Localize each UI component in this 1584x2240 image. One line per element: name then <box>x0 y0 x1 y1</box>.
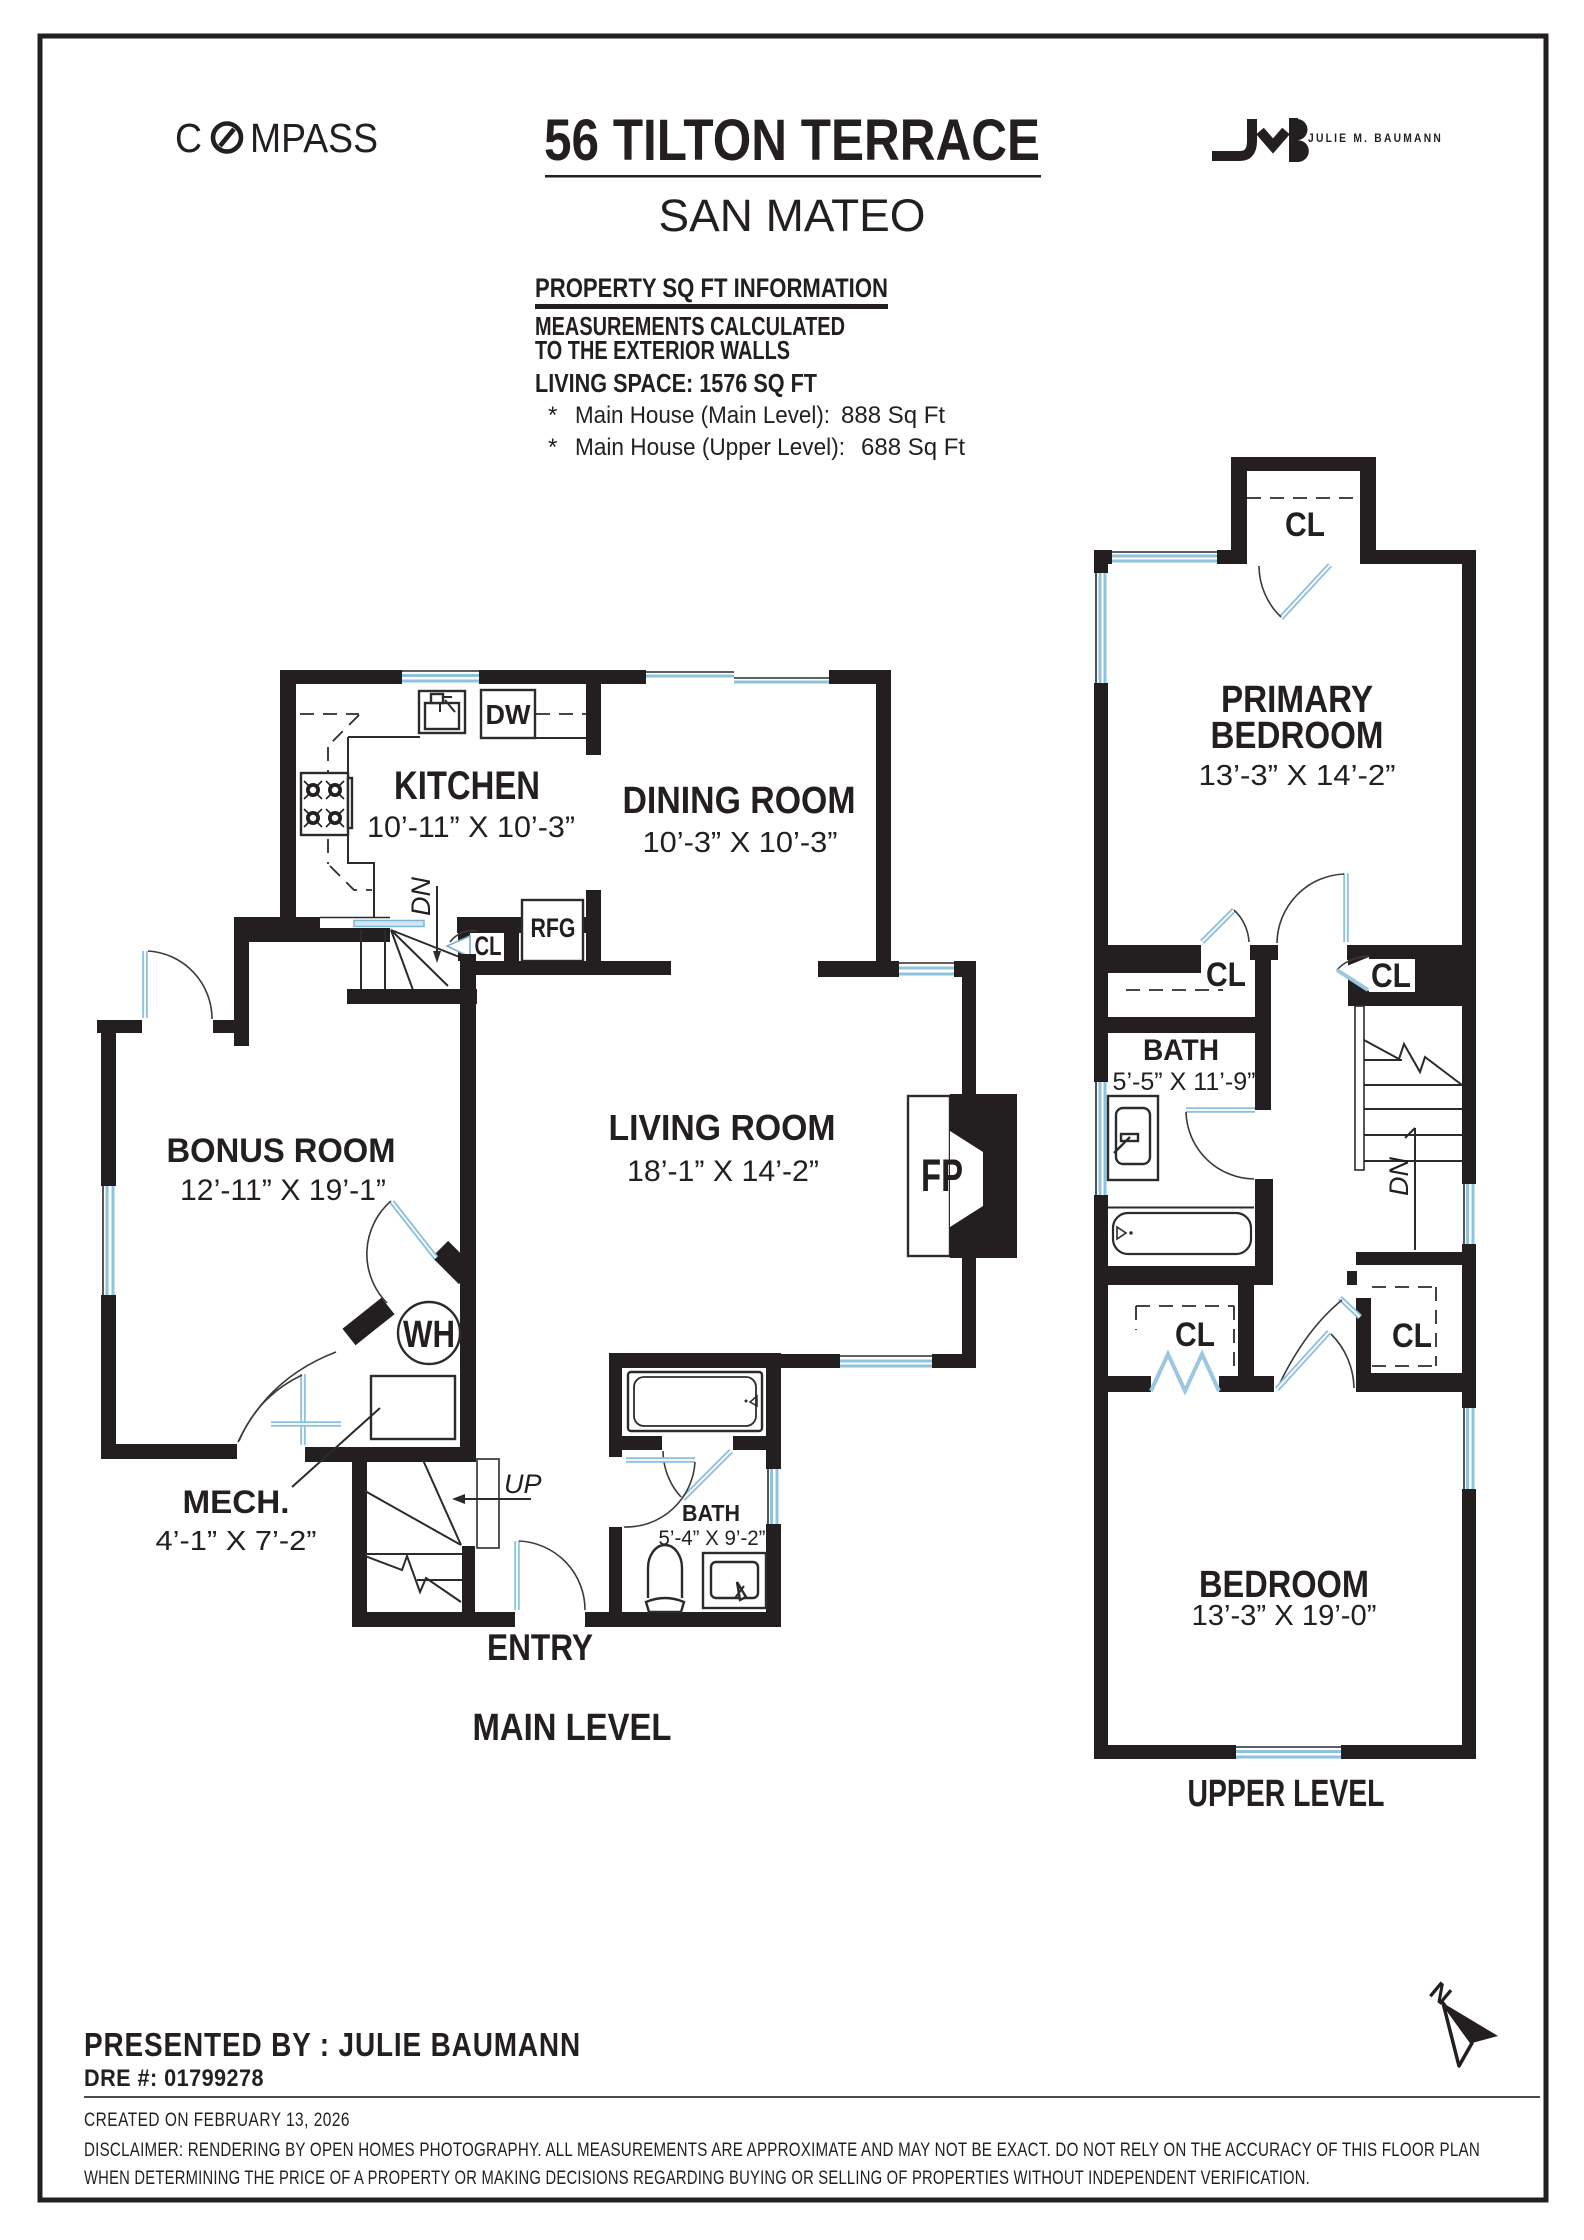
svg-text:JULIE M. BAUMANN: JULIE M. BAUMANN <box>1308 131 1443 145</box>
svg-text:ENTRY: ENTRY <box>487 1627 593 1668</box>
svg-text:13’-3” X 19’-0”: 13’-3” X 19’-0” <box>1192 1600 1377 1632</box>
svg-text:DW: DW <box>486 699 532 730</box>
svg-text:13’-3” X 14’-2”: 13’-3” X 14’-2” <box>1199 760 1396 792</box>
svg-text:688 Sq Ft: 688 Sq Ft <box>861 434 965 461</box>
svg-text:Main House (Upper Level):: Main House (Upper Level): <box>575 434 845 461</box>
svg-text:RFG: RFG <box>531 913 576 943</box>
svg-text:MPASS: MPASS <box>250 115 378 161</box>
svg-text:5’-4” X 9’-2”: 5’-4” X 9’-2” <box>659 1527 766 1550</box>
svg-text:C: C <box>175 115 202 161</box>
svg-text:WH: WH <box>403 1314 455 1356</box>
svg-text:CL: CL <box>1175 1316 1215 1354</box>
svg-text:*: * <box>548 402 557 429</box>
svg-text:BATH: BATH <box>1143 1034 1219 1067</box>
svg-text:UP: UP <box>504 1469 542 1499</box>
svg-text:CL: CL <box>1371 957 1411 995</box>
svg-text:5’-5” X 11’-9”: 5’-5” X 11’-9” <box>1113 1068 1256 1096</box>
svg-text:TO THE EXTERIOR WALLS: TO THE EXTERIOR WALLS <box>535 335 790 365</box>
svg-text:PRESENTED BY : JULIE BAUMANN: PRESENTED BY : JULIE BAUMANN <box>84 2026 581 2063</box>
svg-text:DN: DN <box>1384 1157 1414 1196</box>
svg-text:CL: CL <box>1206 956 1246 994</box>
svg-text:BEDROOM: BEDROOM <box>1211 715 1384 757</box>
svg-text:DINING ROOM: DINING ROOM <box>623 780 856 822</box>
svg-text:56 TILTON TERRACE: 56 TILTON TERRACE <box>544 108 1040 173</box>
svg-text:18’-1” X 14’-2”: 18’-1” X 14’-2” <box>627 1155 819 1188</box>
svg-text:BONUS ROOM: BONUS ROOM <box>167 1132 396 1170</box>
svg-text:888 Sq Ft: 888 Sq Ft <box>841 402 945 429</box>
svg-text:SAN MATEO: SAN MATEO <box>659 190 926 241</box>
svg-text:MAIN LEVEL: MAIN LEVEL <box>473 1707 672 1749</box>
svg-text:10’-3” X 10’-3”: 10’-3” X 10’-3” <box>643 827 838 859</box>
svg-text:PROPERTY SQ FT INFORMATION: PROPERTY SQ FT INFORMATION <box>535 273 888 303</box>
svg-text:UPPER LEVEL: UPPER LEVEL <box>1188 1773 1385 1815</box>
svg-text:CL: CL <box>1285 506 1325 544</box>
svg-text:CL: CL <box>475 931 502 961</box>
svg-text:KITCHEN: KITCHEN <box>394 764 540 808</box>
svg-text:LIVING ROOM: LIVING ROOM <box>609 1107 836 1148</box>
svg-text:CL: CL <box>1392 1317 1432 1355</box>
svg-text:BATH: BATH <box>682 1500 740 1526</box>
svg-text:LIVING SPACE: 1576 SQ FT: LIVING SPACE: 1576 SQ FT <box>535 368 817 398</box>
svg-text:DRE #: 01799278: DRE #: 01799278 <box>84 2065 264 2092</box>
svg-text:DN: DN <box>406 877 436 916</box>
svg-text:10’-11” X 10’-3”: 10’-11” X 10’-3” <box>367 811 575 844</box>
svg-text:Main House (Main Level):: Main House (Main Level): <box>575 402 830 429</box>
svg-text:WHEN DETERMINING THE PRICE OF: WHEN DETERMINING THE PRICE OF A PROPERTY… <box>84 2168 1310 2189</box>
svg-text:FP: FP <box>921 1150 963 1201</box>
svg-text:MECH.: MECH. <box>183 1484 290 1520</box>
svg-text:*: * <box>548 434 557 461</box>
svg-text:4’-1” X 7’-2”: 4’-1” X 7’-2” <box>156 1525 317 1556</box>
svg-text:DISCLAIMER: RENDERING BY OPEN: DISCLAIMER: RENDERING BY OPEN HOMES PHOT… <box>84 2140 1480 2161</box>
svg-text:CREATED ON FEBRUARY 13, 2026: CREATED ON FEBRUARY 13, 2026 <box>84 2110 350 2131</box>
svg-text:12’-11” X 19’-1”: 12’-11” X 19’-1” <box>180 1174 386 1207</box>
